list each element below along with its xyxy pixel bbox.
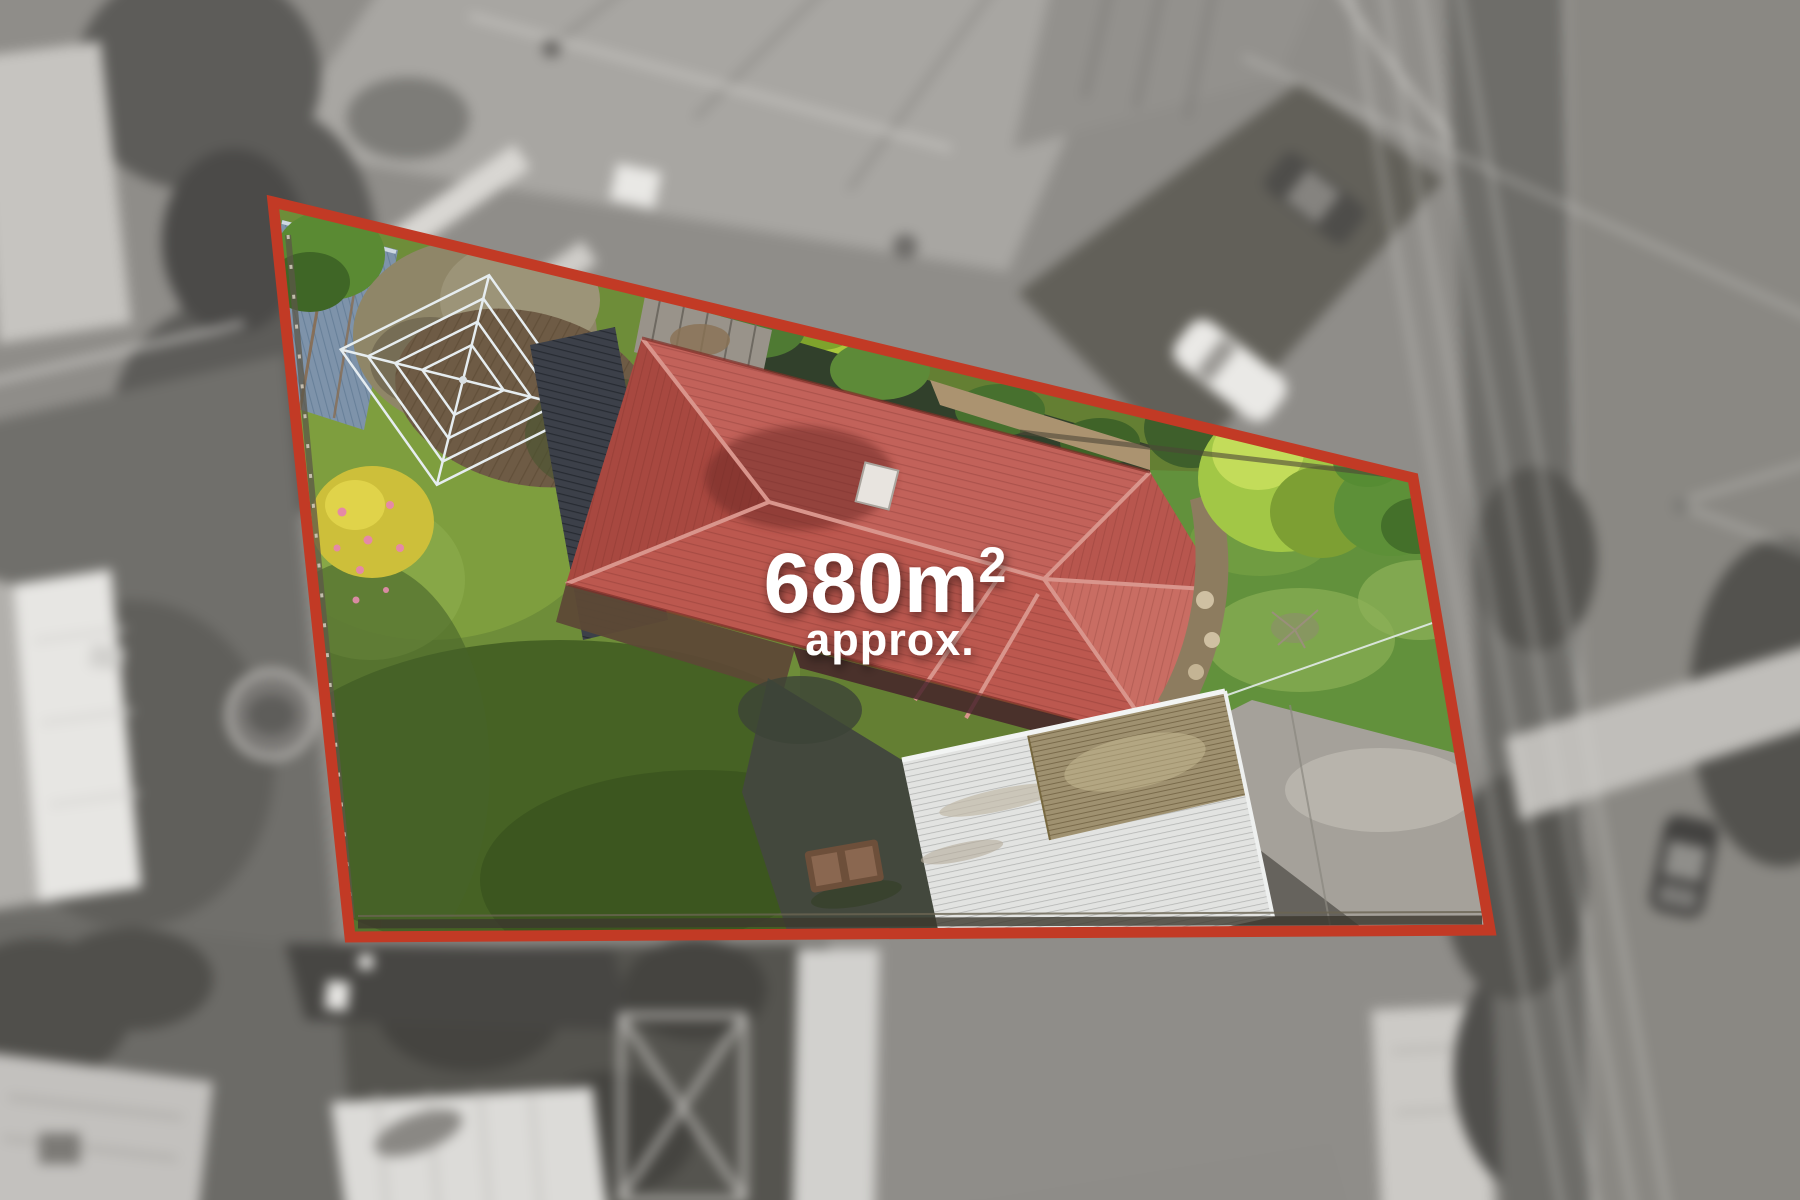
aerial-photo: 680m2 approx. bbox=[0, 0, 1800, 1200]
area-qualifier-text: approx. bbox=[805, 614, 975, 665]
highlighted-parcel-layer: 680m2 approx. bbox=[0, 0, 1800, 1200]
area-superscript: 2 bbox=[979, 537, 1007, 593]
